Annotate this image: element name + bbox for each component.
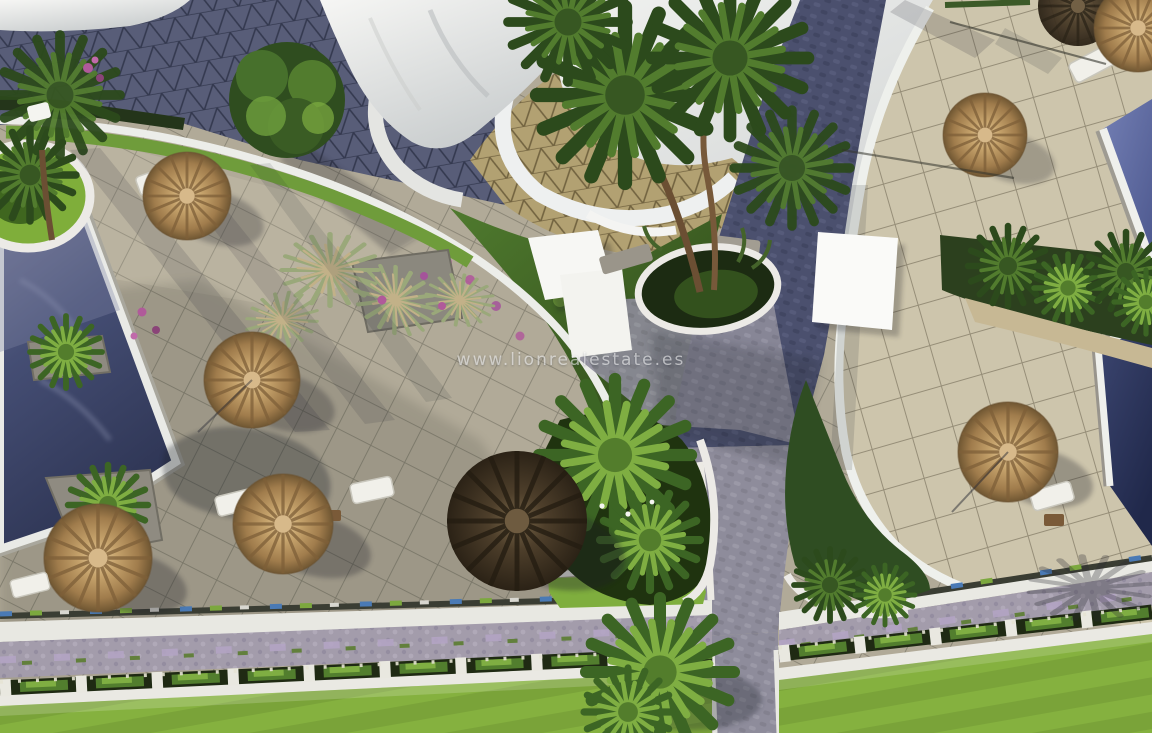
thatch-umbrella — [943, 93, 1027, 177]
aerial-resort-render: www.lionrealestate.es — [0, 0, 1152, 733]
thatch-umbrella — [233, 474, 333, 574]
thatch-umbrella — [44, 504, 152, 612]
thatch-umbrella-dark — [447, 451, 587, 591]
render-canvas — [0, 0, 1152, 733]
thatch-umbrella — [143, 152, 231, 240]
